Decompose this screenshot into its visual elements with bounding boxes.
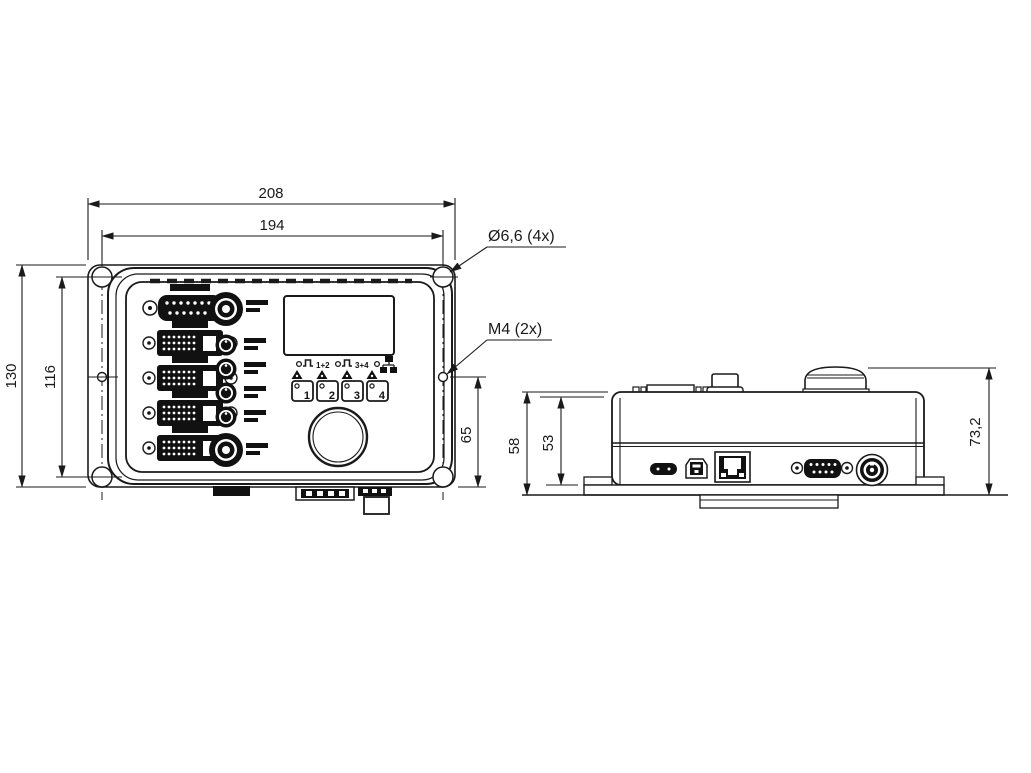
m4-hole-right: [439, 373, 448, 382]
service-port: [650, 463, 677, 475]
drawing-canvas: 1+2 3+4 1: [0, 0, 1031, 773]
button-label-3: 3: [354, 390, 360, 402]
flange-right: [916, 477, 944, 485]
dim-overall-height: 130: [3, 363, 20, 388]
connector-label-bar: [170, 284, 210, 291]
callout-corner-holes: Ø6,6 (4x): [488, 228, 555, 245]
bottom-edge-connectors: [213, 486, 392, 514]
top-round-connector: [707, 374, 743, 394]
technical-drawing: 1+2 3+4 1: [0, 0, 1031, 773]
button-label-2: 2: [329, 390, 335, 402]
callout-side-threads: M4 (2x): [488, 321, 542, 338]
indicator-label-2: 3+4: [355, 361, 369, 370]
ethernet-port: [715, 452, 750, 482]
bottom-dsub-profile: [296, 487, 354, 500]
dim-body-height: 58: [506, 438, 523, 455]
hole-bottom-right: [433, 467, 453, 487]
power-connector: [857, 455, 888, 486]
dim-total-height: 73,2: [967, 417, 984, 446]
dim-overall-width: 208: [258, 185, 283, 202]
knob-side-profile: [803, 367, 869, 393]
ear-dot: [148, 306, 152, 310]
connector-label-bar: [246, 300, 268, 305]
front-view: 1+2 3+4 1: [3, 185, 566, 514]
connector-label-bar: [172, 321, 208, 328]
indicator-label-1: 1+2: [316, 361, 330, 370]
flange-left: [584, 477, 612, 485]
base-plate: [584, 485, 944, 495]
dim-m4-to-base: 65: [458, 427, 475, 444]
bottom-rail-plate: [700, 495, 838, 508]
side-view: 58 53 73,2: [506, 367, 1008, 508]
connector-label-bar: [246, 308, 260, 312]
display: [284, 296, 394, 355]
dim-inner-height: 53: [540, 435, 557, 452]
bottom-power-connector: [358, 487, 392, 514]
dim-hole-spacing-width: 194: [259, 217, 284, 234]
dim-hole-spacing-height: 116: [42, 365, 59, 389]
bottom-port: [213, 486, 250, 496]
button-label-4: 4: [379, 390, 386, 402]
button-label-1: 1: [304, 390, 310, 402]
usb-b-port: [686, 459, 707, 478]
